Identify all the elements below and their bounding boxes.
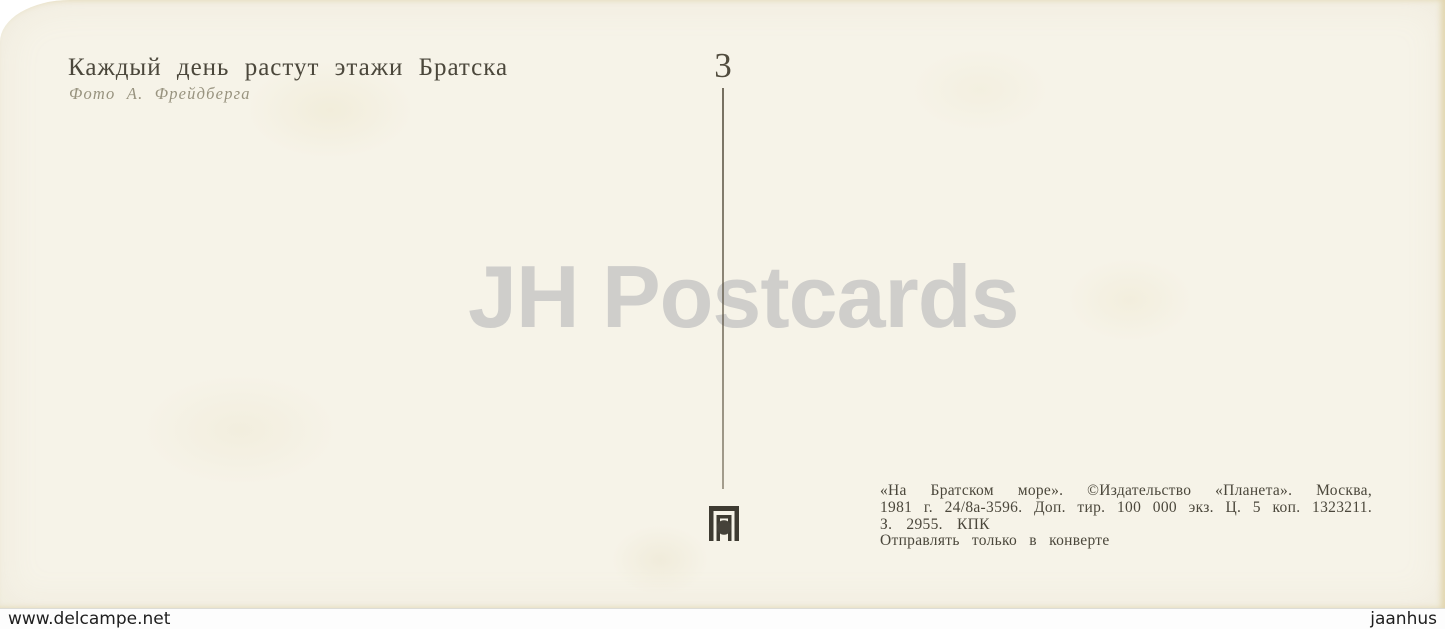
photo-credit: Фото А. Фрейдберга — [69, 84, 251, 104]
delcampe-watermark: www.delcampe.net — [8, 609, 170, 629]
jh-postcards-watermark: JH Postcards — [468, 246, 1018, 348]
postcard-scan: Каждый день растут этажи Братска Фото А.… — [0, 0, 1445, 629]
postcard-title: Каждый день растут этажи Братска — [68, 54, 508, 82]
publisher-imprint: «На Братском море». ©Издательство «Плане… — [880, 483, 1372, 550]
postcard-back: Каждый день растут этажи Братска Фото А.… — [0, 0, 1445, 608]
imprint-line: «На Братском море». ©Издательство «Плане… — [880, 483, 1372, 500]
planeta-publisher-logo-icon — [705, 499, 743, 543]
series-number: 3 — [692, 46, 754, 86]
mailing-note: Отправлять только в конверте — [880, 533, 1372, 550]
divider-line — [722, 88, 724, 489]
jaanhus-watermark: jaanhus — [1370, 609, 1437, 629]
imprint-line: 1981 г. 24/8а-3596. Доп. тир. 100 000 эк… — [880, 500, 1372, 517]
imprint-line: З. 2955. КПК — [880, 517, 1372, 534]
scan-footer: www.delcampe.net jaanhus — [0, 608, 1445, 629]
